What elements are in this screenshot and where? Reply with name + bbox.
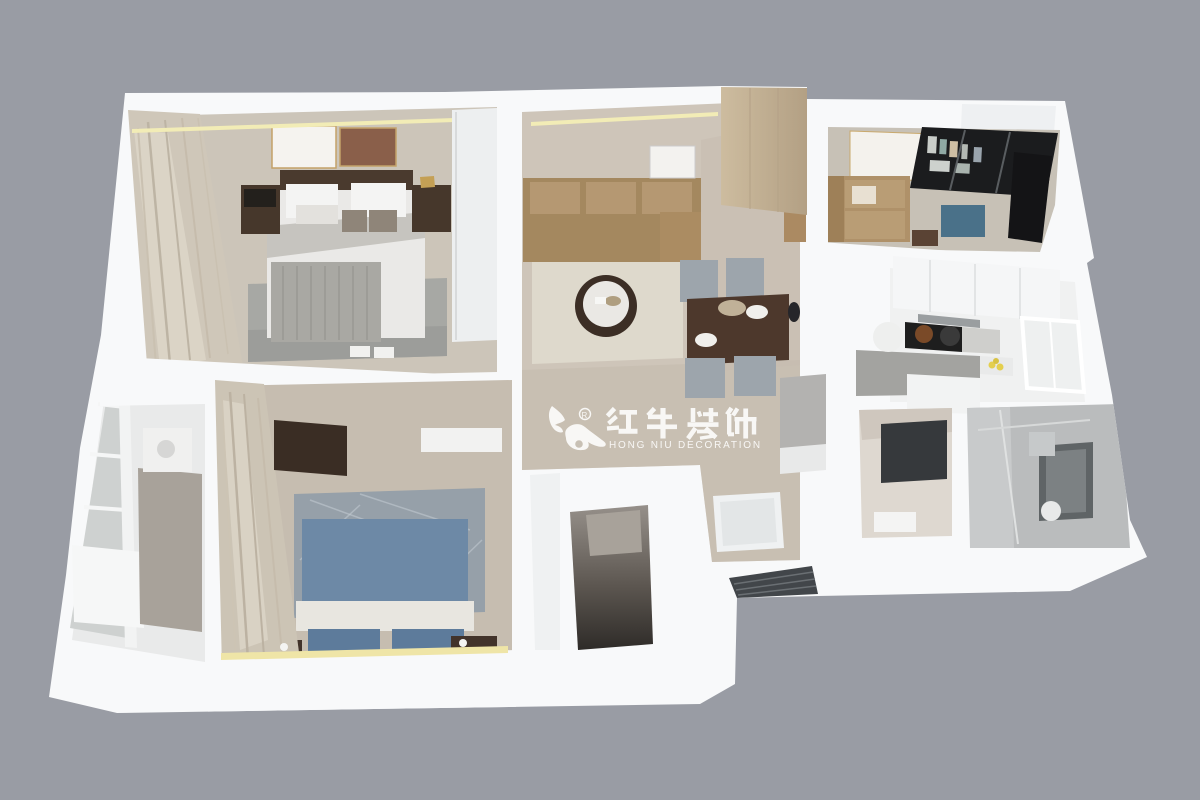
svg-text:R: R — [582, 411, 588, 420]
svg-text:HONG NIU DECORATION: HONG NIU DECORATION — [609, 440, 762, 451]
